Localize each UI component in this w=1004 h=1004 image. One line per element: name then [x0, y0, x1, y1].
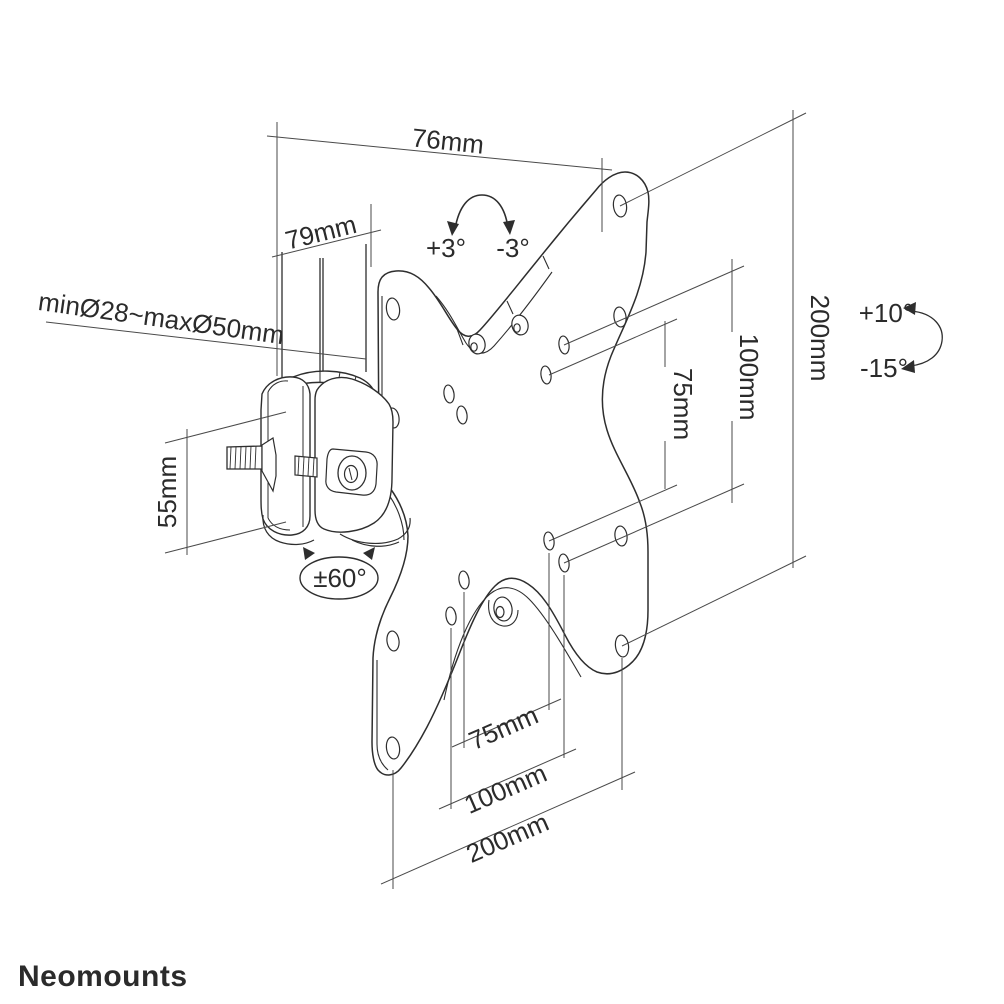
dim-vesa-right-200-label: 200mm	[805, 295, 835, 382]
top-flange-hole-right-pin	[514, 324, 520, 332]
bolt-shaft	[227, 446, 262, 469]
tilt-up-label: +10°	[859, 298, 914, 328]
neomounts-logo: Neomounts	[18, 960, 188, 993]
bottom-flange-hole-pin	[496, 607, 504, 618]
roll-plus-label: +3°	[426, 233, 466, 263]
swivel-range-label: ±60°	[313, 563, 367, 593]
monitor-mount-technical-drawing: 76mm 79mm minØ28~maxØ50mm 55mm ±60° +3° …	[0, 0, 1004, 1004]
roll-minus-label: -3°	[496, 233, 530, 263]
tilt-down-label: -15°	[860, 353, 908, 383]
dim-clamp-height-label: 55mm	[152, 456, 182, 528]
dim-vesa-right-100-label: 100mm	[734, 334, 764, 421]
top-flange-hole-left-pin	[471, 343, 477, 351]
technical-drawing-page: 76mm 79mm minØ28~maxØ50mm 55mm ±60° +3° …	[0, 0, 1004, 1004]
dim-vesa-right-75-label: 75mm	[668, 368, 698, 440]
